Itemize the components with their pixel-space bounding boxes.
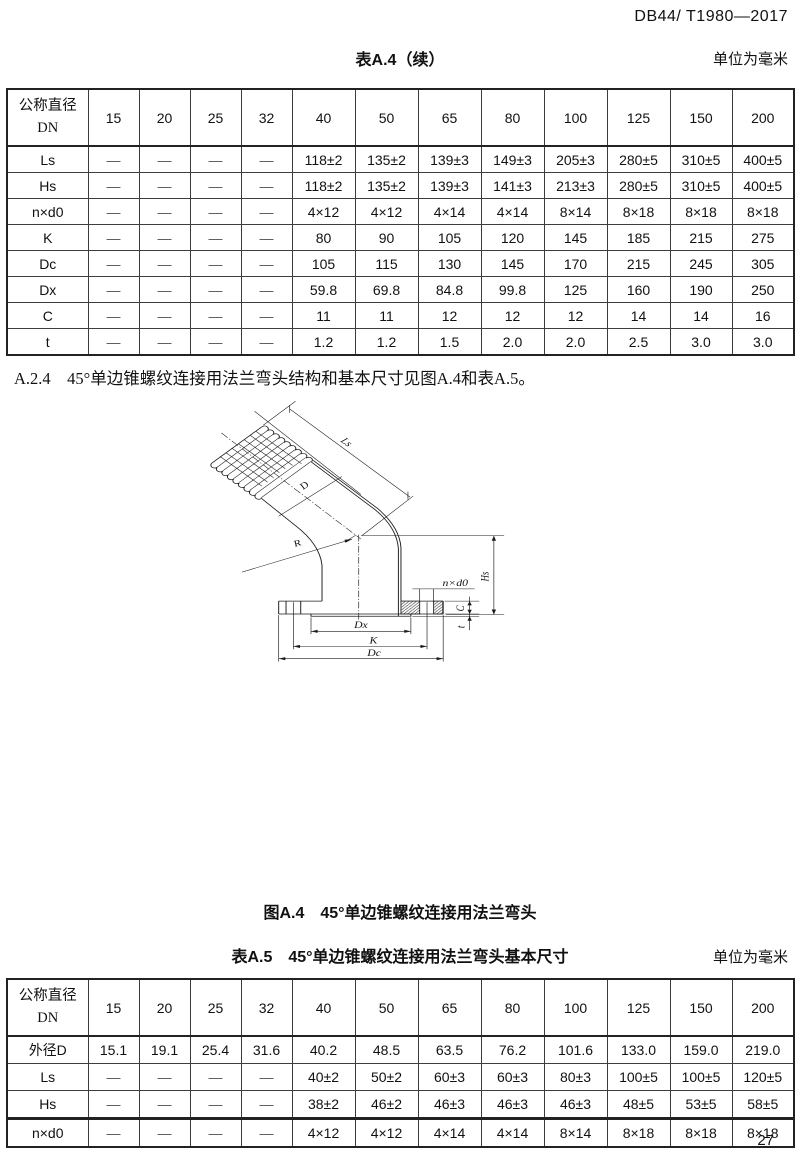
dimension-cell: — [190,199,241,225]
dimension-cell: — [241,277,292,303]
dimension-cell: 280±5 [607,146,670,173]
dimension-cell: 2.0 [544,329,607,356]
dimension-cell: — [190,173,241,199]
table-a5-unit-note: 单位为毫米 [713,946,788,967]
dimension-cell: 4×12 [355,1119,418,1148]
dimension-cell: 135±2 [355,173,418,199]
dim-label-hs: Hs [480,572,492,583]
row-label: 外径D [7,1036,88,1064]
dimension-cell: 40.2 [292,1036,355,1064]
dimension-cell: — [88,1091,139,1119]
dimension-cell: 280±5 [607,173,670,199]
dimension-cell: 50±2 [355,1064,418,1091]
dimension-cell: 46±2 [355,1091,418,1119]
dimension-cell: 12 [418,303,481,329]
dn-column-header-150: 150 [670,89,732,146]
table-row-外径D: 外径D15.119.125.431.640.248.563.576.2101.6… [7,1036,794,1064]
dimension-cell: 11 [355,303,418,329]
row-label: Dc [7,251,88,277]
dn-label-line1: 公称直径 [8,96,88,118]
table-a5-header-row: 公称直径 DN 1520253240506580100125150200 [7,979,794,1036]
dimension-cell: 1.2 [355,329,418,356]
dimension-cell: 1.2 [292,329,355,356]
dn-column-header-40: 40 [292,89,355,146]
dimension-cell: 4×14 [481,1119,544,1148]
dimension-cell: 4×12 [292,1119,355,1148]
dimension-cell: 305 [732,251,794,277]
table-row-Dc: Dc————105115130145170215245305 [7,251,794,277]
dn-label-cell: 公称直径 DN [7,979,88,1036]
dimension-cell: 101.6 [544,1036,607,1064]
page-number: 27 [757,1132,774,1149]
dimension-cell: 310±5 [670,173,732,199]
dim-label-dx: Dx [353,621,368,630]
dimension-cell: 48.5 [355,1036,418,1064]
dimension-cell: — [139,1091,190,1119]
dim-label-d: D [297,480,313,492]
row-label: Ls [7,146,88,173]
dn-column-header-200: 200 [732,89,794,146]
dimension-cell: 46±3 [418,1091,481,1119]
dn-column-header-40: 40 [292,979,355,1036]
dn-column-header-20: 20 [139,89,190,146]
dimension-cell: — [241,329,292,356]
dimension-cell: 25.4 [190,1036,241,1064]
dimension-cell: 63.5 [418,1036,481,1064]
dimension-cell: — [88,146,139,173]
dn-label-line2: DN [8,118,88,140]
row-label: K [7,225,88,251]
flange-outline [279,601,444,616]
dn-column-header-25: 25 [190,89,241,146]
dimension-cell: — [190,1091,241,1119]
dimension-cell: 58±5 [732,1091,794,1119]
dimension-cell: — [88,225,139,251]
dimension-cell: 90 [355,225,418,251]
dn-column-header-32: 32 [241,89,292,146]
dimension-lines [242,401,504,661]
dimension-cell: — [139,225,190,251]
dimension-cell: 215 [607,251,670,277]
dimension-cell: 8×18 [607,1119,670,1148]
table-row-n×d0: n×d0————4×124×124×144×148×148×188×188×18 [7,199,794,225]
dn-column-header-15: 15 [88,89,139,146]
dim-label-k: K [368,637,378,646]
dimension-cell: 160 [607,277,670,303]
dimension-cell: 250 [732,277,794,303]
dimension-cell: — [139,251,190,277]
thread-lines [217,431,311,498]
table-a4-header-row: 公称直径 DN 1520253240506580100125150200 [7,89,794,146]
dn-label-cell: 公称直径 DN [7,89,88,146]
dimension-cell: — [139,1119,190,1148]
dimension-cell: 145 [544,225,607,251]
dimension-cell: 8×14 [544,1119,607,1148]
row-label: t [7,329,88,356]
dimension-cell: 100±5 [670,1064,732,1091]
dim-label-r: R [291,538,304,549]
dimension-cell: 14 [607,303,670,329]
row-label: Ls [7,1064,88,1091]
dn-column-header-125: 125 [607,979,670,1036]
row-label: n×d0 [7,199,88,225]
dimension-cell: — [190,277,241,303]
dimension-cell: — [88,1064,139,1091]
dimension-cell: — [139,329,190,356]
dim-label-dc: Dc [366,649,381,658]
table-row-Ls: Ls————118±2135±2139±3149±3205±3280±5310±… [7,146,794,173]
row-label: Hs [7,1091,88,1119]
dimension-cell: 139±3 [418,173,481,199]
dimension-cell: — [139,173,190,199]
table-a4-unit-note: 单位为毫米 [713,48,788,69]
dimension-cell: — [241,173,292,199]
dimension-cell: 118±2 [292,146,355,173]
dimension-cell: 400±5 [732,146,794,173]
dimension-cell: 76.2 [481,1036,544,1064]
dn-label-line2: DN [8,1008,88,1030]
figure-a4-drawing: Ls D R Hs n×d0 C t Dx K Dc [170,395,640,895]
dimension-cell: 100±5 [607,1064,670,1091]
dimension-cell: — [241,199,292,225]
dn-column-header-125: 125 [607,89,670,146]
dimension-cell: — [88,173,139,199]
dimension-cell: 170 [544,251,607,277]
dimension-cell: — [139,199,190,225]
dimension-cell: 46±3 [544,1091,607,1119]
dimension-cell: 14 [670,303,732,329]
dimension-cell: 245 [670,251,732,277]
dimension-cell: 105 [418,225,481,251]
dimension-cell: 53±5 [670,1091,732,1119]
row-label: C [7,303,88,329]
figure-a4-caption: 图A.4 45°单边锥螺纹连接用法兰弯头 [0,899,800,923]
dimension-cell: 38±2 [292,1091,355,1119]
dimension-cell: — [190,1064,241,1091]
table-row-Hs: Hs————118±2135±2139±3141±3213±3280±5310±… [7,173,794,199]
dn-column-header-100: 100 [544,89,607,146]
dimension-cell: 310±5 [670,146,732,173]
dimension-cell: — [190,1119,241,1148]
dimension-cell: 80 [292,225,355,251]
dimension-cell: 4×12 [292,199,355,225]
dimension-cell: — [139,1064,190,1091]
dn-column-header-80: 80 [481,979,544,1036]
dimension-cell: 2.5 [607,329,670,356]
dimension-cell: 19.1 [139,1036,190,1064]
dn-column-header-100: 100 [544,979,607,1036]
dimension-cell: — [139,146,190,173]
doc-code: DB44/ T1980—2017 [634,8,788,26]
dimension-cell: — [190,225,241,251]
dimension-cell: — [88,1119,139,1148]
dimension-cell: 69.8 [355,277,418,303]
dimension-cell: 40±2 [292,1064,355,1091]
table-row-Ls: Ls————40±250±260±360±380±3100±5100±5120±… [7,1064,794,1091]
dimension-cell: 4×14 [418,199,481,225]
dn-column-header-32: 32 [241,979,292,1036]
dimension-cell: 8×18 [670,1119,732,1148]
dimension-cell: 4×14 [418,1119,481,1148]
dimension-cell: 31.6 [241,1036,292,1064]
dn-column-header-65: 65 [418,89,481,146]
table-row-t: t————1.21.21.52.02.02.53.03.0 [7,329,794,356]
dimension-cell: 11 [292,303,355,329]
dimension-cell: 105 [292,251,355,277]
dimension-cell: 149±3 [481,146,544,173]
dimension-cell: — [241,146,292,173]
dimension-cell: — [88,277,139,303]
dimension-arrows [279,536,496,660]
table-row-Hs: Hs————38±246±246±346±346±348±553±558±5 [7,1091,794,1119]
dimension-cell: — [139,277,190,303]
dimension-cell: — [241,303,292,329]
dimension-cell: 16 [732,303,794,329]
dimension-cell: 125 [544,277,607,303]
dim-label-ls: Ls [337,436,354,449]
dimension-cell: — [241,1064,292,1091]
dimension-cell: 84.8 [418,277,481,303]
dimension-cell: — [190,303,241,329]
dn-column-header-200: 200 [732,979,794,1036]
dimension-cell: 3.0 [732,329,794,356]
dim-label-t: t [455,625,467,628]
table-row-C: C————1111121212141416 [7,303,794,329]
dimension-cell: 8×18 [732,199,794,225]
dimension-cell: 60±3 [481,1064,544,1091]
dimension-cell: 205±3 [544,146,607,173]
dimension-cell: — [241,1119,292,1148]
dimension-cell: 8×14 [544,199,607,225]
dimension-cell: — [190,146,241,173]
dimension-cell: 400±5 [732,173,794,199]
dimension-cell: — [88,303,139,329]
dn-column-header-150: 150 [670,979,732,1036]
dn-column-header-65: 65 [418,979,481,1036]
table-row-n×d0: n×d0————4×124×124×144×148×148×188×188×18 [7,1119,794,1148]
dimension-cell: — [190,329,241,356]
dimension-cell: 120±5 [732,1064,794,1091]
dimension-cell: 213±3 [544,173,607,199]
dimension-cell: 141±3 [481,173,544,199]
table-a5-title: 表A.5 45°单边锥螺纹连接用法兰弯头基本尺寸 [0,943,800,967]
dn-column-header-50: 50 [355,89,418,146]
dimension-cell: — [241,251,292,277]
dn-label-line1: 公称直径 [8,986,88,1008]
dimension-cell: 3.0 [670,329,732,356]
flange-section-hatch-left [401,601,420,614]
dimension-cell: — [241,1091,292,1119]
dimension-cell: 59.8 [292,277,355,303]
dn-column-header-25: 25 [190,979,241,1036]
document-page: { "page": { "doc_code": "DB44/ T1980—201… [0,0,800,1168]
dn-column-header-80: 80 [481,89,544,146]
dimension-cell: 15.1 [88,1036,139,1064]
dimension-cell: 133.0 [607,1036,670,1064]
dim-label-nxd0: n×d0 [442,579,468,588]
dimension-cell: — [88,329,139,356]
dimension-cell: — [88,251,139,277]
centerline [221,433,361,621]
dimension-cell: — [88,199,139,225]
dimension-cell: 8×18 [670,199,732,225]
dimension-cell: — [139,303,190,329]
table-a4: 公称直径 DN 1520253240506580100125150200 Ls—… [6,88,795,356]
dimension-cell: 48±5 [607,1091,670,1119]
dimension-cell: 2.0 [481,329,544,356]
table-a5: 公称直径 DN 1520253240506580100125150200 外径D… [6,978,795,1148]
dimension-cell: 46±3 [481,1091,544,1119]
dimension-cell: 275 [732,225,794,251]
dimension-cell: 185 [607,225,670,251]
dimension-cell: 1.5 [418,329,481,356]
dimension-cell: 219.0 [732,1036,794,1064]
dimension-cell: 145 [481,251,544,277]
row-label: Dx [7,277,88,303]
dimension-cell: 8×18 [607,199,670,225]
dim-label-c: C [455,605,467,612]
flange-section-hatch-right [434,601,443,614]
dimension-cell: 4×14 [481,199,544,225]
dimension-cell: 4×12 [355,199,418,225]
dimension-cell: — [241,225,292,251]
row-label: n×d0 [7,1119,88,1148]
dn-column-header-50: 50 [355,979,418,1036]
elbow-outline [211,426,401,616]
dimension-cell: 130 [418,251,481,277]
paragraph-a2-4: A.2.4 45°单边锥螺纹连接用法兰弯头结构和基本尺寸见图A.4和表A.5。 [14,365,774,389]
dimension-cell: 118±2 [292,173,355,199]
row-label: Hs [7,173,88,199]
dimension-cell: 190 [670,277,732,303]
dn-column-header-20: 20 [139,979,190,1036]
table-row-Dx: Dx————59.869.884.899.8125160190250 [7,277,794,303]
dimension-cell: 120 [481,225,544,251]
dimension-cell: 115 [355,251,418,277]
dimension-cell: 139±3 [418,146,481,173]
dimension-cell: 12 [481,303,544,329]
table-a4-title: 表A.4（续） [0,46,800,70]
dimension-cell: 99.8 [481,277,544,303]
dimension-cell: 80±3 [544,1064,607,1091]
dn-column-header-15: 15 [88,979,139,1036]
dimension-cell: 135±2 [355,146,418,173]
dimension-cell: 12 [544,303,607,329]
dimension-cell: — [190,251,241,277]
dimension-cell: 159.0 [670,1036,732,1064]
dimension-cell: 215 [670,225,732,251]
table-row-K: K————8090105120145185215275 [7,225,794,251]
dimension-cell: 60±3 [418,1064,481,1091]
